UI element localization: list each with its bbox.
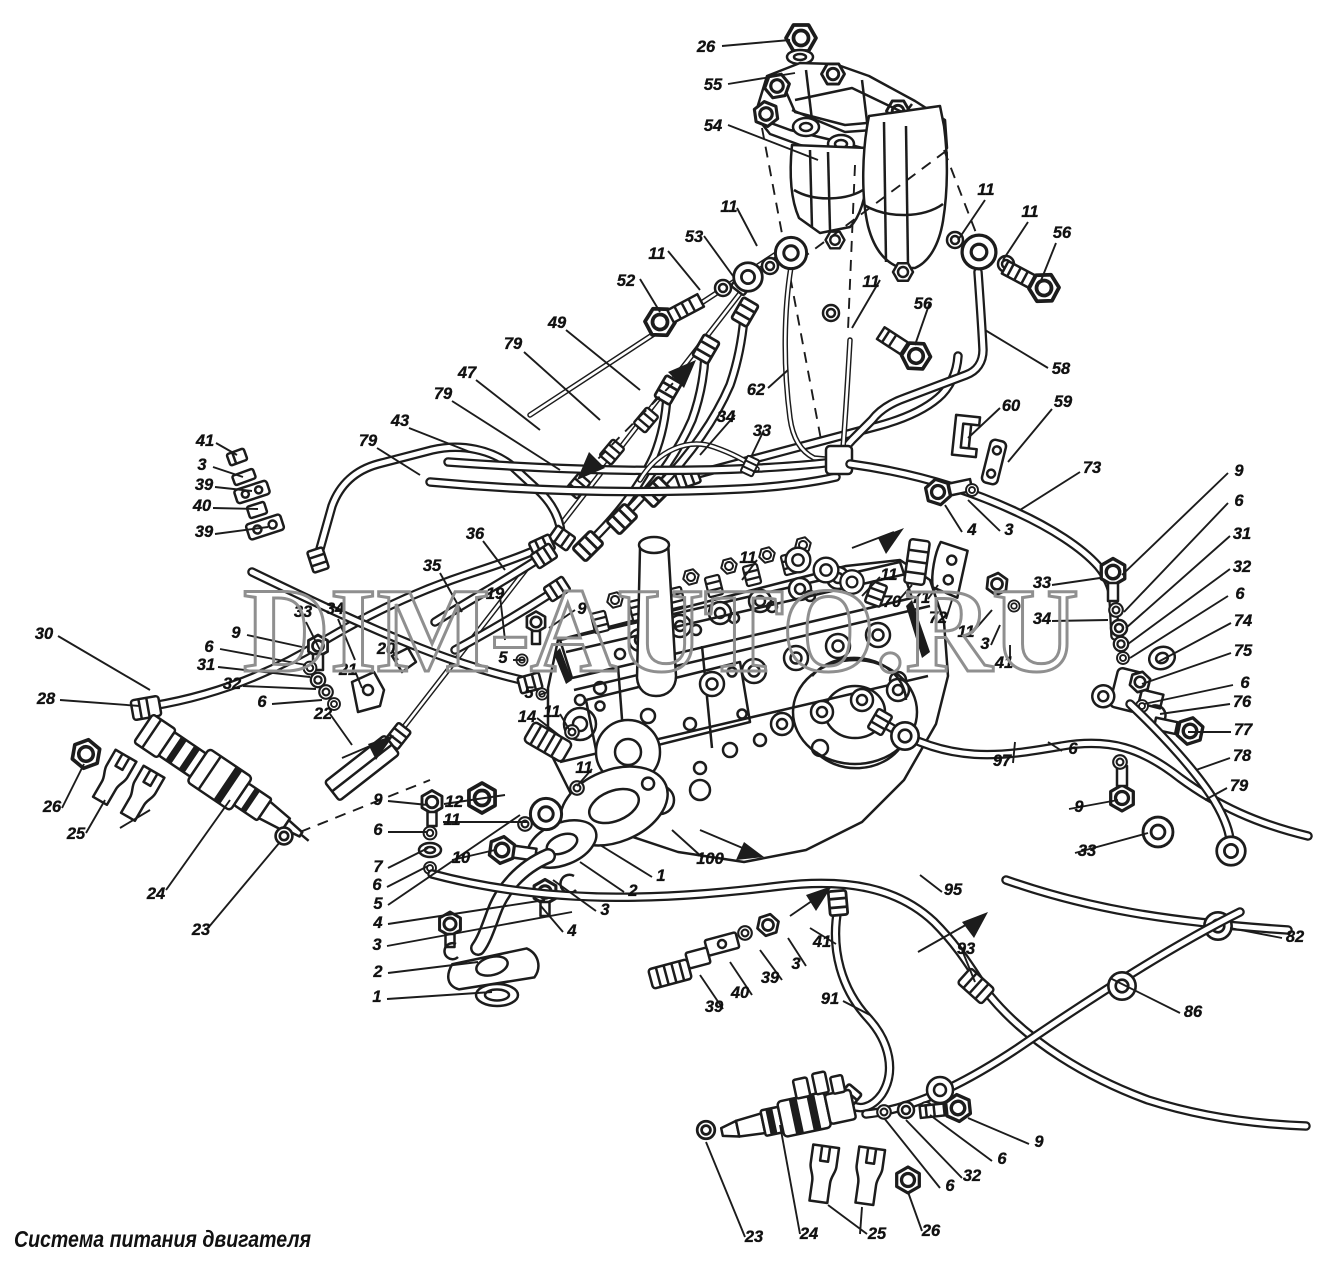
svg-text:79: 79	[504, 335, 523, 353]
svg-text:1: 1	[372, 988, 381, 1006]
svg-text:4: 4	[372, 914, 382, 932]
svg-text:14: 14	[518, 708, 536, 726]
svg-text:74: 74	[1234, 612, 1252, 630]
svg-text:52: 52	[617, 272, 635, 290]
svg-text:95: 95	[944, 881, 963, 899]
svg-text:11: 11	[720, 198, 737, 216]
svg-text:56: 56	[1053, 224, 1072, 242]
svg-text:2: 2	[372, 963, 382, 981]
svg-text:78: 78	[1233, 747, 1252, 765]
svg-text:32: 32	[223, 675, 241, 693]
svg-text:77: 77	[1234, 721, 1253, 739]
svg-text:41: 41	[812, 933, 831, 951]
svg-text:58: 58	[1052, 360, 1071, 378]
svg-text:76: 76	[1233, 693, 1252, 711]
svg-text:100: 100	[696, 850, 724, 868]
svg-text:79: 79	[434, 385, 453, 403]
svg-text:91: 91	[821, 990, 839, 1008]
svg-text:39: 39	[761, 969, 780, 987]
svg-text:1: 1	[656, 867, 665, 885]
svg-text:24: 24	[799, 1225, 818, 1243]
svg-text:11: 11	[1021, 203, 1038, 221]
svg-text:26: 26	[921, 1222, 941, 1240]
svg-text:60: 60	[1002, 397, 1021, 415]
svg-text:3: 3	[372, 936, 381, 954]
svg-text:6: 6	[204, 638, 214, 656]
svg-text:47: 47	[457, 364, 477, 382]
svg-text:11: 11	[648, 245, 665, 263]
svg-text:53: 53	[685, 228, 703, 246]
svg-text:34: 34	[717, 408, 735, 426]
svg-text:7: 7	[373, 858, 383, 876]
svg-text:40: 40	[730, 984, 750, 1002]
svg-text:9: 9	[1074, 798, 1084, 816]
svg-text:6: 6	[373, 821, 383, 839]
svg-text:3: 3	[791, 955, 800, 973]
svg-text:6: 6	[1235, 585, 1245, 603]
svg-text:DIM-AUTO.RU: DIM-AUTO.RU	[243, 564, 1079, 698]
svg-text:75: 75	[1234, 642, 1253, 660]
svg-text:30: 30	[35, 625, 54, 643]
svg-text:5: 5	[373, 895, 383, 913]
svg-text:11: 11	[977, 181, 994, 199]
svg-text:24: 24	[146, 885, 165, 903]
svg-text:73: 73	[1083, 459, 1101, 477]
svg-text:9: 9	[1234, 462, 1244, 480]
svg-text:55: 55	[704, 76, 723, 94]
svg-text:93: 93	[957, 940, 975, 958]
svg-text:6: 6	[1240, 674, 1250, 692]
svg-text:6: 6	[1068, 740, 1078, 758]
svg-text:86: 86	[1184, 1003, 1203, 1021]
svg-text:2: 2	[627, 882, 637, 900]
svg-text:3: 3	[1004, 521, 1013, 539]
svg-text:43: 43	[390, 412, 409, 430]
svg-text:23: 23	[744, 1228, 763, 1246]
svg-text:33: 33	[753, 422, 771, 440]
svg-text:56: 56	[914, 295, 933, 313]
svg-text:41: 41	[195, 432, 214, 450]
svg-text:4: 4	[966, 521, 976, 539]
svg-text:22: 22	[313, 705, 332, 723]
svg-text:25: 25	[867, 1225, 887, 1243]
svg-text:32: 32	[963, 1167, 981, 1185]
svg-text:10: 10	[452, 849, 471, 867]
svg-text:26: 26	[42, 798, 62, 816]
svg-text:39: 39	[195, 476, 214, 494]
svg-text:97: 97	[993, 752, 1012, 770]
svg-text:39: 39	[705, 998, 724, 1016]
svg-text:79: 79	[1230, 777, 1249, 795]
svg-text:62: 62	[747, 381, 765, 399]
svg-text:36: 36	[466, 525, 485, 543]
svg-text:59: 59	[1054, 393, 1073, 411]
svg-text:31: 31	[197, 656, 215, 674]
svg-text:54: 54	[704, 117, 722, 135]
svg-text:6: 6	[997, 1150, 1007, 1168]
svg-text:33: 33	[1078, 842, 1096, 860]
svg-text:40: 40	[192, 497, 212, 515]
svg-text:82: 82	[1286, 928, 1304, 946]
svg-text:32: 32	[1233, 558, 1251, 576]
svg-text:11: 11	[575, 759, 592, 777]
svg-text:25: 25	[66, 825, 86, 843]
svg-text:6: 6	[945, 1177, 955, 1195]
svg-text:9: 9	[1034, 1133, 1044, 1151]
svg-text:11: 11	[443, 811, 460, 829]
svg-text:28: 28	[36, 690, 56, 708]
svg-text:11: 11	[862, 273, 879, 291]
svg-text:11: 11	[543, 703, 560, 721]
svg-text:6: 6	[372, 876, 382, 894]
svg-text:79: 79	[359, 432, 378, 450]
svg-text:49: 49	[547, 314, 567, 332]
svg-text:23: 23	[191, 921, 210, 939]
svg-text:39: 39	[195, 523, 214, 541]
svg-text:12: 12	[445, 793, 463, 811]
svg-text:9: 9	[231, 624, 241, 642]
svg-text:26: 26	[696, 38, 716, 56]
svg-text:3: 3	[600, 901, 609, 919]
svg-text:31: 31	[1233, 525, 1251, 543]
svg-text:Система питания двигателя: Система питания двигателя	[14, 1226, 311, 1252]
svg-text:3: 3	[197, 456, 206, 474]
svg-text:9: 9	[373, 791, 383, 809]
svg-text:4: 4	[566, 922, 576, 940]
svg-text:6: 6	[1234, 492, 1244, 510]
